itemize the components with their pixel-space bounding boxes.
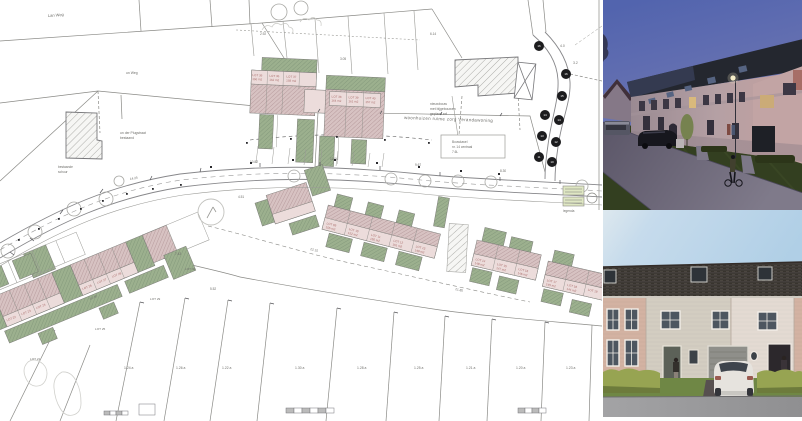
- svg-text:13: 13: [540, 134, 544, 138]
- svg-text:5.52: 5.52: [210, 287, 216, 291]
- svg-text:12: 12: [554, 140, 558, 144]
- svg-text:Bouwkavel: Bouwkavel: [452, 140, 468, 144]
- svg-text:7.6L: 7.6L: [452, 150, 458, 154]
- svg-text:15: 15: [560, 94, 564, 98]
- svg-text:1.26 a: 1.26 a: [176, 366, 186, 370]
- svg-text:7.43: 7.43: [175, 252, 181, 256]
- svg-text:LOT 30: LOT 30: [185, 267, 196, 271]
- svg-text:161 m2: 161 m2: [348, 99, 359, 103]
- svg-text:un Weg: un Weg: [126, 71, 138, 75]
- svg-text:164 m2: 164 m2: [331, 99, 342, 103]
- svg-text:1.21 a: 1.21 a: [466, 366, 476, 370]
- svg-text:3.2: 3.2: [573, 61, 578, 65]
- svg-text:nieuwbouw: nieuwbouw: [430, 102, 448, 106]
- svg-text:11: 11: [537, 155, 540, 159]
- svg-text:met bijgebouwen: met bijgebouwen: [430, 107, 456, 111]
- svg-text:bestaande: bestaande: [58, 165, 73, 169]
- svg-text:157 m2: 157 m2: [365, 100, 376, 104]
- svg-text:14: 14: [543, 113, 547, 117]
- svg-text:160 m2: 160 m2: [252, 77, 263, 81]
- svg-text:4.51: 4.51: [238, 195, 244, 199]
- svg-text:2.92: 2.92: [260, 32, 266, 36]
- svg-text:1.24 a: 1.24 a: [124, 366, 134, 370]
- svg-text:1.30 a: 1.30 a: [295, 366, 305, 370]
- svg-text:16: 16: [537, 44, 541, 48]
- svg-text:LOT 21: LOT 21: [30, 357, 41, 361]
- svg-text:bestaand: bestaand: [120, 136, 134, 140]
- svg-text:1.25 a: 1.25 a: [414, 366, 424, 370]
- svg-text:8.30: 8.30: [500, 169, 506, 173]
- svg-text:1.28 a: 1.28 a: [357, 366, 367, 370]
- svg-text:legenda: legenda: [563, 209, 575, 213]
- svg-text:158 m2: 158 m2: [286, 79, 297, 83]
- svg-text:schuur: schuur: [58, 170, 69, 174]
- svg-text:LOT 29: LOT 29: [150, 297, 161, 301]
- svg-text:LOT 25: LOT 25: [95, 327, 106, 331]
- svg-text:nr. 14 centraal: nr. 14 centraal: [452, 145, 472, 149]
- svg-text:1.20 a: 1.20 a: [516, 366, 526, 370]
- svg-text:16: 16: [564, 72, 568, 76]
- svg-text:162 m2: 162 m2: [269, 78, 280, 82]
- svg-text:14: 14: [557, 118, 561, 122]
- svg-text:4.0: 4.0: [560, 44, 565, 48]
- svg-text:1.23 a: 1.23 a: [566, 366, 576, 370]
- svg-text:un der Plugstraat: un der Plugstraat: [120, 131, 146, 135]
- svg-text:3.05: 3.05: [340, 57, 346, 61]
- svg-text:10: 10: [550, 160, 554, 164]
- svg-text:1.22 a: 1.22 a: [222, 366, 232, 370]
- svg-text:6.14: 6.14: [430, 32, 436, 36]
